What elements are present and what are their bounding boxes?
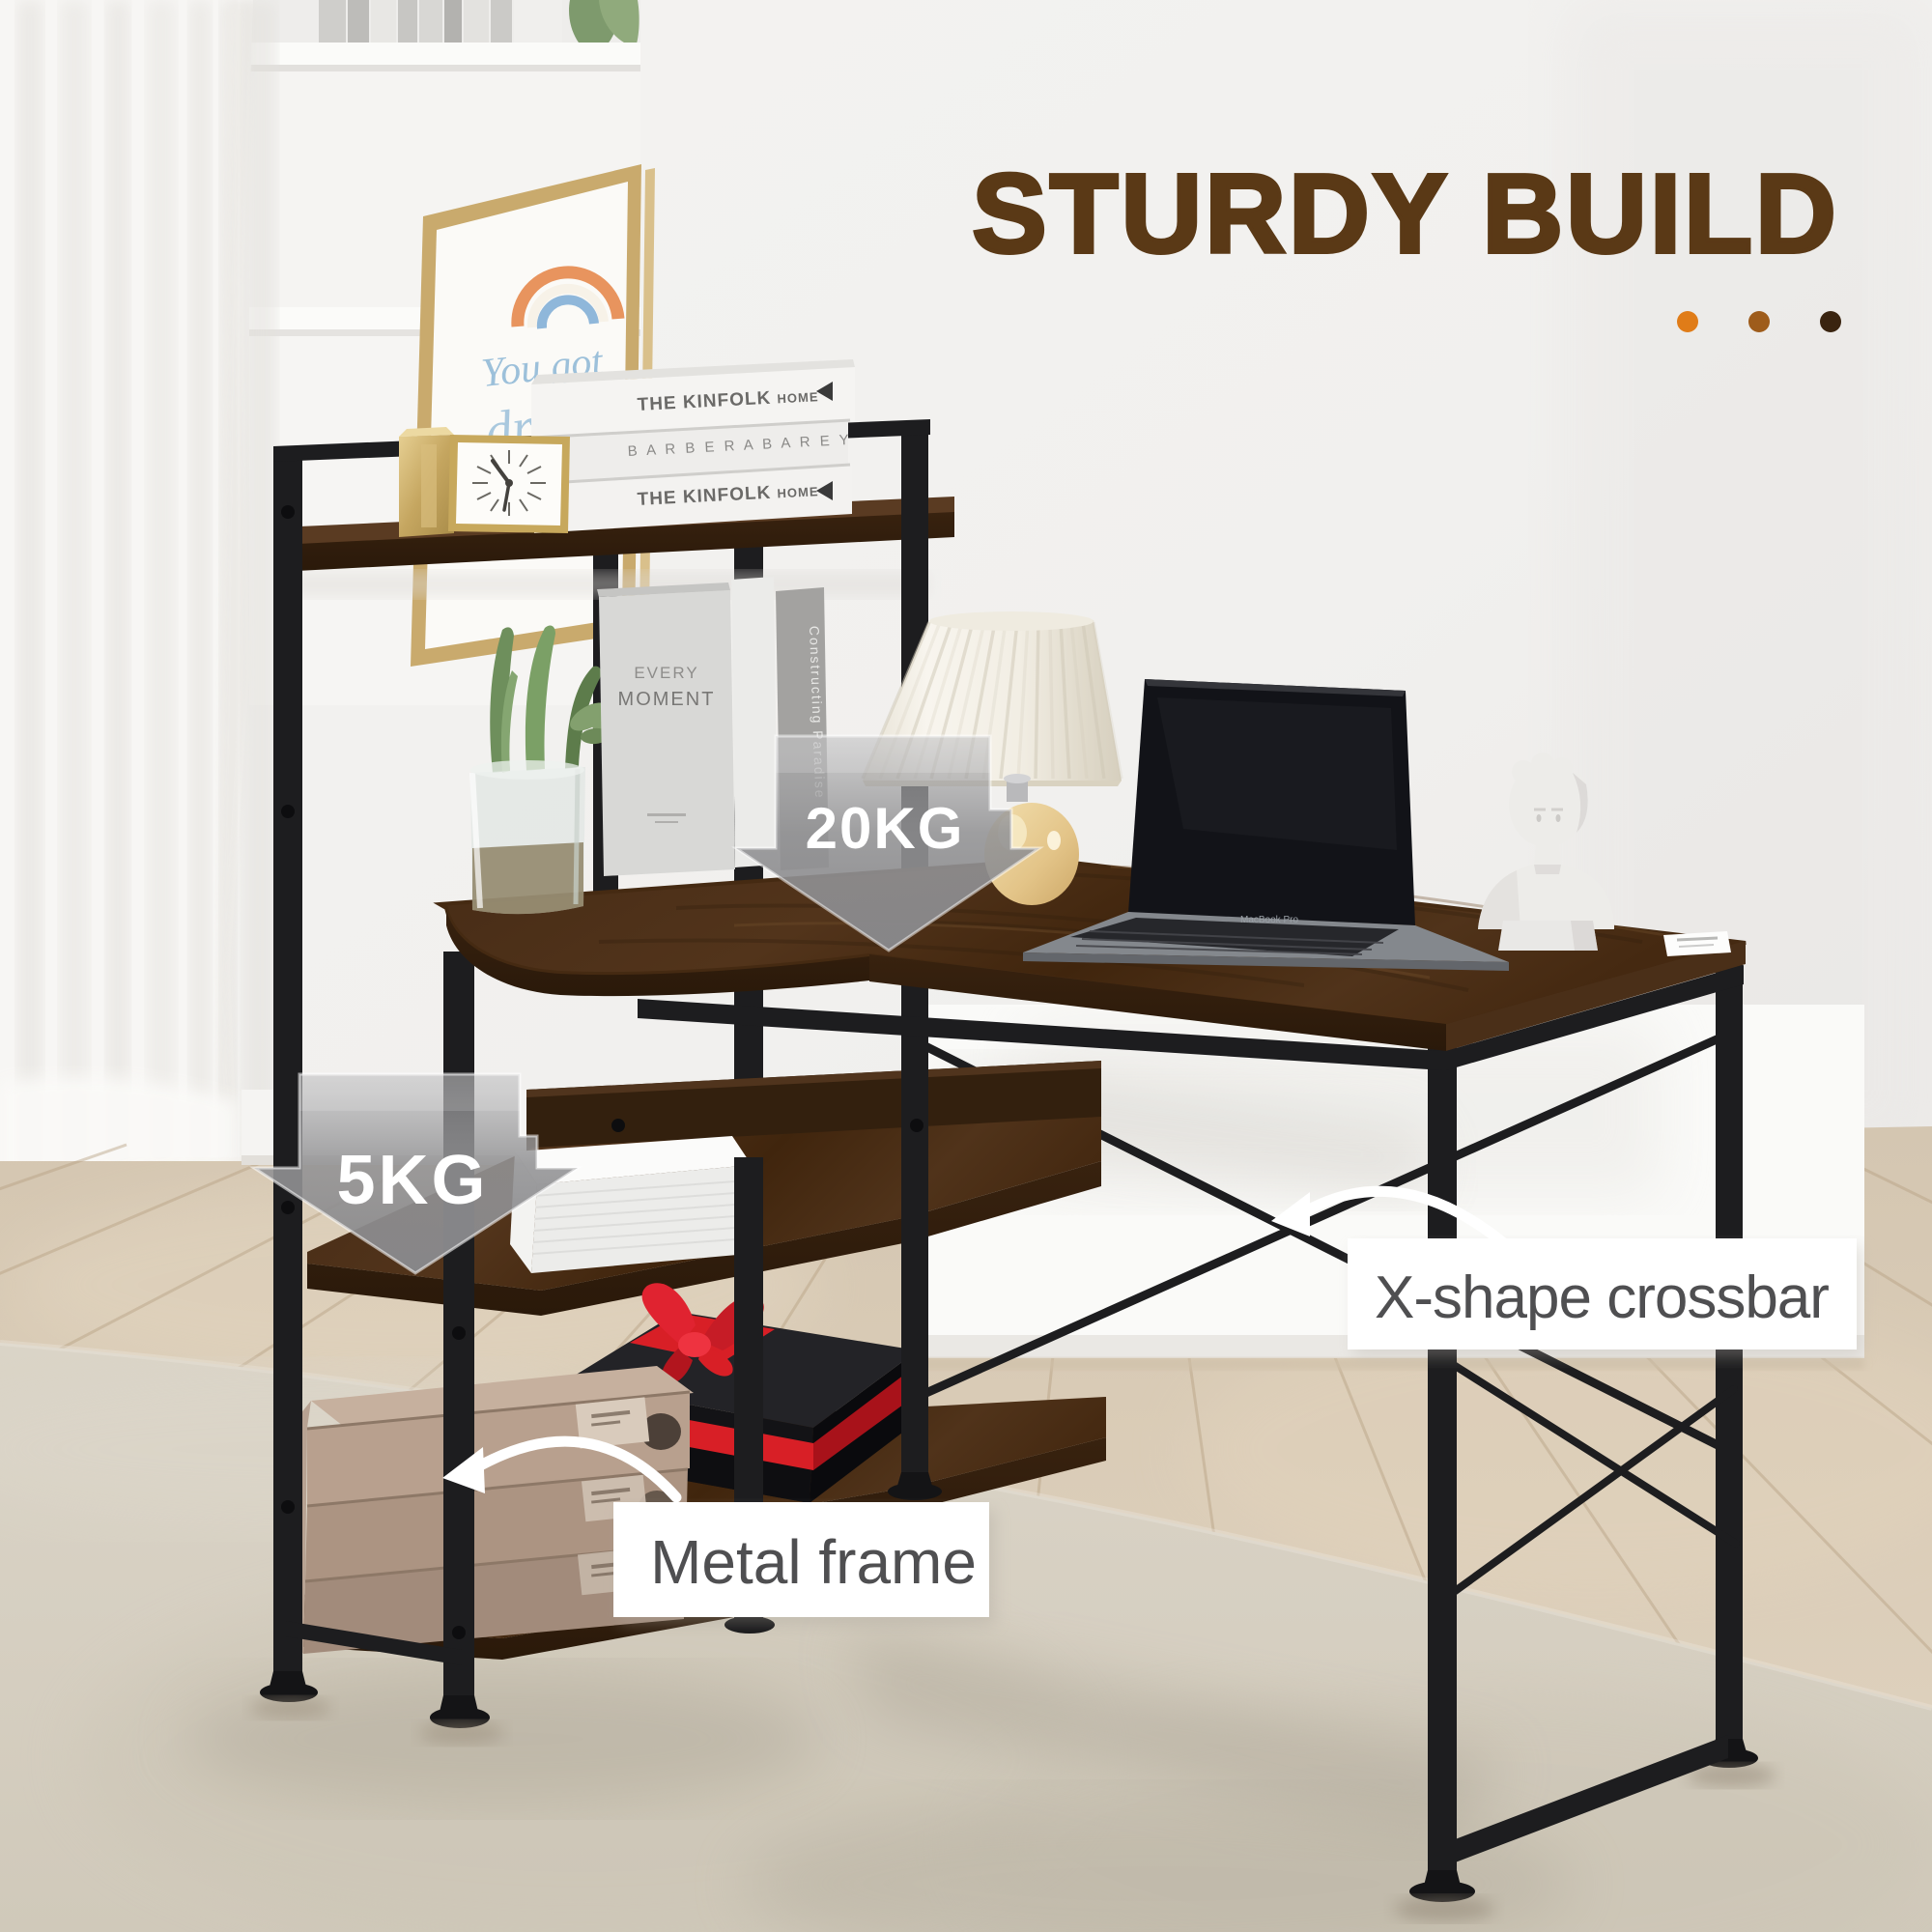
svg-text:STURDY BUILD: STURDY BUILD [972,151,1838,276]
svg-text:X-shape crossbar: X-shape crossbar [1375,1264,1829,1331]
svg-text:EVERY: EVERY [634,664,698,682]
svg-text:5KG: 5KG [336,1142,488,1219]
svg-text:20KG: 20KG [806,796,965,861]
svg-text:MacBook Pro: MacBook Pro [1240,915,1298,925]
svg-text:MOMENT: MOMENT [618,689,716,710]
svg-text:Metal frame: Metal frame [650,1527,977,1597]
